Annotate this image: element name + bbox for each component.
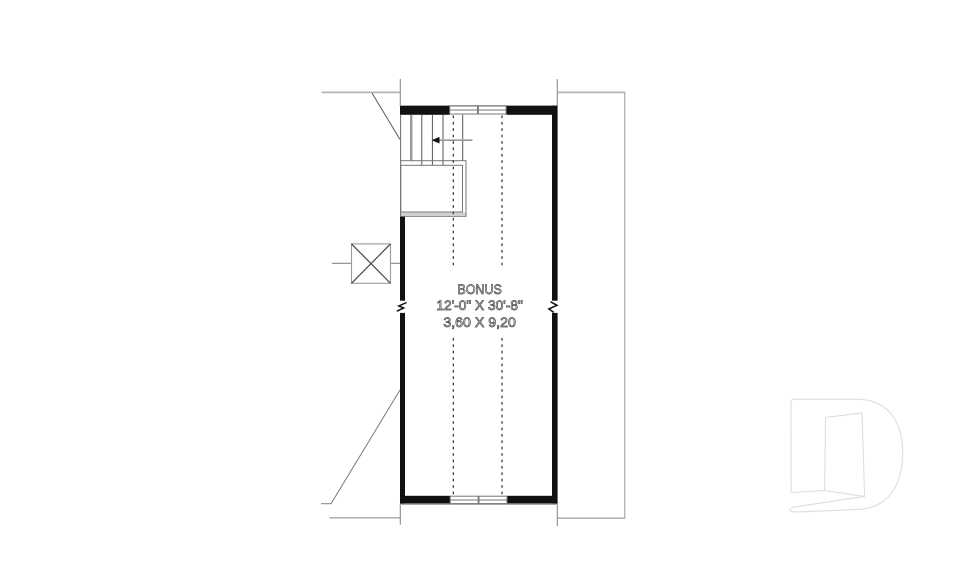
svg-text:BONUS: BONUS <box>457 281 502 297</box>
svg-text:12'-0" X 30'-8": 12'-0" X 30'-8" <box>436 297 523 313</box>
svg-text:3,60 X 9,20: 3,60 X 9,20 <box>443 314 516 330</box>
